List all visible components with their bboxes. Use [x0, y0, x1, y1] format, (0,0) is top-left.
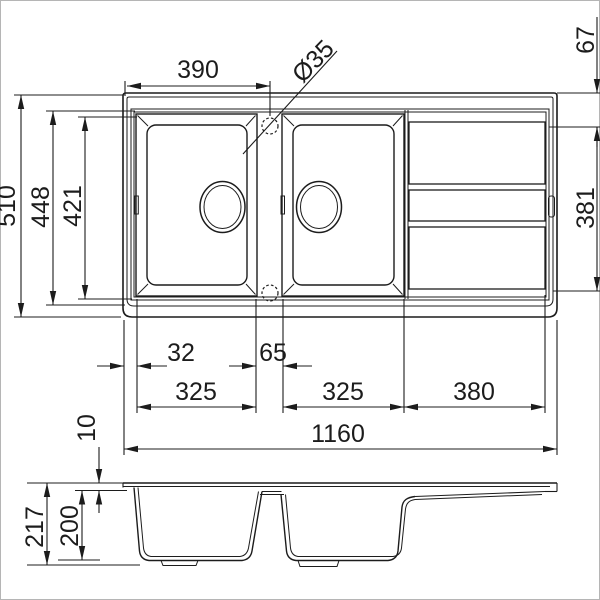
- dim-65-label: 65: [259, 339, 287, 367]
- bowl-1-drain-boss: [161, 561, 198, 566]
- bowl-1-corner-bevel: [138, 116, 149, 127]
- bowl-2-corner-bevel: [284, 284, 295, 295]
- sink-outer-edge: [123, 93, 557, 317]
- arrowhead: [18, 303, 24, 317]
- arrowhead: [242, 404, 256, 410]
- bowl-1-corner-bevel: [246, 116, 256, 127]
- bowl-2: [281, 114, 404, 296]
- bowl-2-corner-bevel: [393, 116, 403, 127]
- arrowhead: [124, 446, 138, 452]
- arrowhead: [18, 95, 24, 109]
- bowl-1-drain-outer: [200, 182, 245, 233]
- dim-510-label: 510: [0, 185, 21, 227]
- bowl-1-section-outer: [134, 488, 262, 561]
- side-view: [123, 483, 557, 567]
- arrowhead: [242, 363, 256, 369]
- sink-inner-edge: [127, 97, 553, 306]
- deck-recess-inner: [134, 112, 546, 297]
- dim-65: 65: [229, 339, 312, 369]
- arrowhead: [96, 491, 102, 505]
- arrowhead: [79, 546, 85, 560]
- dim-390: 390: [125, 56, 270, 116]
- arrowhead: [137, 363, 151, 369]
- dim-tap-hole-label: Ø35: [287, 35, 340, 88]
- arrowhead: [50, 111, 56, 125]
- dim-325-bowl1: 325: [137, 378, 256, 410]
- bowl-2-corner-bevel: [284, 116, 295, 127]
- bowl-1: [135, 114, 257, 296]
- dim-200-label: 200: [56, 505, 84, 547]
- bowl-1-corner-bevel: [138, 284, 149, 295]
- bowl-1-section-inner: [138, 488, 259, 557]
- bowl-2-drain-boss: [298, 561, 339, 567]
- top-view: [123, 93, 557, 317]
- dim-325-bowl2: 325: [283, 378, 404, 410]
- arrowhead: [44, 483, 50, 497]
- bowl-1-rim: [136, 114, 257, 296]
- tap-hole-top: [262, 118, 278, 134]
- bowl-2-drain-outer: [297, 182, 342, 233]
- arrowhead: [50, 291, 56, 305]
- bowl-1-drain-inner: [204, 186, 241, 229]
- drainboard: [405, 110, 555, 299]
- dim-380: 380: [404, 378, 545, 410]
- arrowhead: [79, 491, 85, 505]
- arrowhead: [531, 404, 545, 410]
- deck-recess-outer: [131, 109, 549, 300]
- dim-67: 67: [549, 17, 600, 147]
- bowl-2-section-inner: [286, 495, 416, 557]
- bowl-1-basin: [147, 125, 247, 285]
- bowl-1-corner-bevel: [246, 284, 256, 295]
- drawing-canvas: 390 Ø35 67 381 510 448: [0, 0, 600, 600]
- tap-hole-bottom: [262, 285, 278, 301]
- dim-325-bowl1-label: 325: [175, 378, 217, 406]
- bowl-2-basin: [293, 125, 394, 285]
- dim-421-label: 421: [59, 185, 87, 227]
- dim-1160: 1160: [124, 420, 557, 452]
- arrowhead: [390, 404, 404, 410]
- dim-217-label: 217: [21, 506, 49, 548]
- dim-1160-label: 1160: [311, 420, 365, 448]
- bowl-2-drain-inner: [301, 186, 338, 229]
- sink-technical-drawing: 390 Ø35 67 381 510 448: [0, 0, 600, 600]
- dim-32: 32: [97, 339, 195, 369]
- dim-381-label: 381: [572, 187, 600, 229]
- dim-380-label: 380: [453, 378, 495, 406]
- drainboard-panel-2: [409, 190, 545, 221]
- arrowhead: [404, 404, 418, 410]
- arrowhead: [543, 446, 557, 452]
- drainboard-surface-line: [415, 492, 545, 497]
- arrowhead: [82, 285, 88, 299]
- bowl-2-corner-bevel: [393, 284, 403, 295]
- dim-421: 421: [59, 117, 137, 299]
- arrowhead: [82, 117, 88, 131]
- dim-10-label: 10: [73, 414, 101, 442]
- dim-390-label: 390: [177, 56, 219, 84]
- arrowhead: [44, 551, 50, 565]
- bowl-2-section-outer: [281, 495, 415, 561]
- dim-325-bowl2-label: 325: [322, 378, 364, 406]
- arrowhead: [283, 404, 297, 410]
- dim-67-label: 67: [572, 26, 600, 54]
- dim-10: 10: [27, 414, 127, 513]
- arrowhead: [96, 469, 102, 483]
- arrowhead: [256, 83, 270, 89]
- drainboard-panel-3: [409, 227, 545, 289]
- dim-381: 381: [553, 127, 600, 291]
- dim-448-label: 448: [27, 186, 55, 228]
- arrowhead: [110, 363, 124, 369]
- dim-32-label: 32: [167, 339, 195, 367]
- dim-200: 200: [56, 491, 100, 561]
- arrowhead: [127, 83, 141, 89]
- arrowhead: [137, 404, 151, 410]
- drainboard-panel-1: [409, 122, 545, 184]
